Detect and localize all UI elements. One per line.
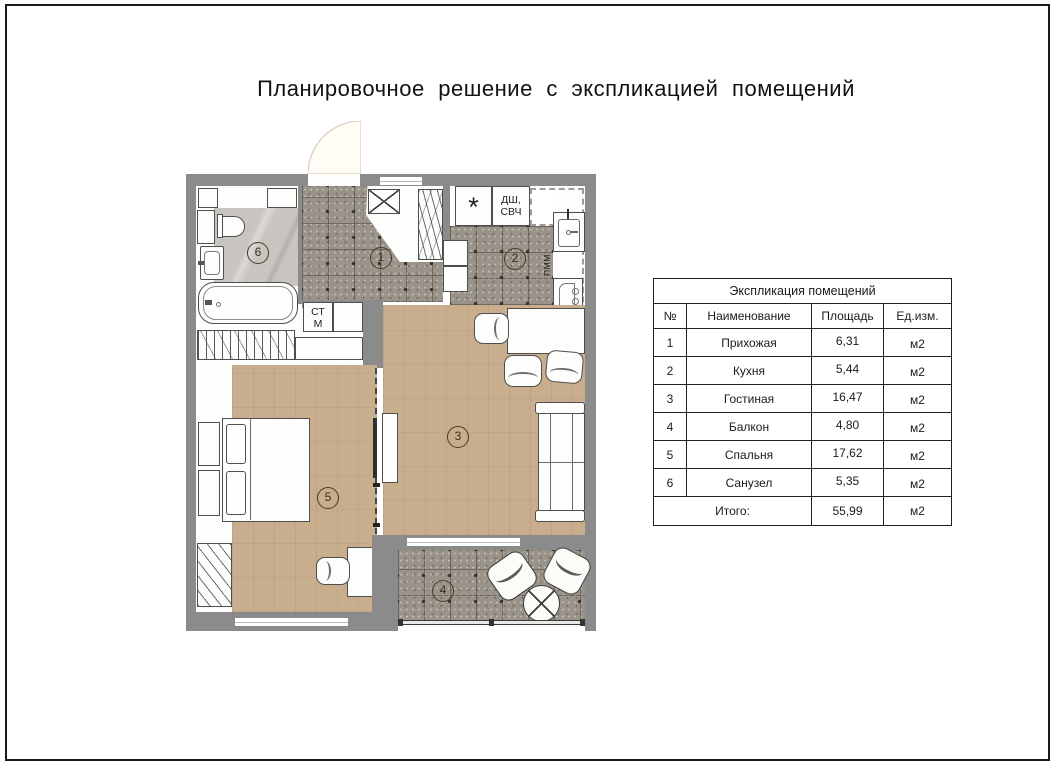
cell-num: 6 [654,469,686,496]
wardrobe-rail-icon [197,330,295,360]
room-number-badge: 1 [370,247,392,269]
dining-table-icon [507,308,585,354]
explication-table: Экспликация помещений № Наименование Пло… [653,278,952,526]
cell-unit: м2 [883,385,951,412]
table-row: 6 Санузел 5,35 м2 [654,468,951,496]
tv-icon [373,418,377,478]
washing-machine-icon: СТ М [303,302,333,332]
cell-num: 5 [654,441,686,468]
mirror-cabinet-icon [368,189,400,214]
room-number-badge: 4 [432,580,454,602]
cell-area: 4,80 [811,413,883,440]
cell-area: 6,31 [811,329,883,356]
washbasin-icon [200,246,224,280]
cell-area: 16,47 [811,385,883,412]
cell-name: Прихожая [686,329,811,356]
cell-unit: м2 [883,329,951,356]
table-row: 1 Прихожая 6,31 м2 [654,328,951,356]
dishwasher-label: ПММ [543,252,555,278]
table-row: 2 Кухня 5,44 м2 [654,356,951,384]
oven-microwave-icon: ДШ, СВЧ [492,186,530,226]
dining-chair-icon [504,355,542,387]
total-area: 55,99 [811,497,883,525]
wall-hall-kitchen [443,186,450,240]
cell-name: Кухня [686,357,811,384]
wall-left [186,174,196,631]
stove-icon: * [455,186,492,226]
svch-label: СВЧ [493,206,529,218]
dining-chair-icon [474,313,509,344]
table-title: Экспликация помещений [654,279,951,303]
door-handle-icon [373,523,380,527]
entrance-door-icon [308,121,361,174]
coat-rack-icon [418,189,443,260]
room-number-badge: 2 [504,248,526,270]
cell-name: Санузел [686,469,811,496]
total-unit: м2 [883,497,951,525]
cell-num: 4 [654,413,686,440]
balcony-door-icon [407,537,520,547]
page-title: Планировочное решение с экспликацией пом… [56,76,1056,102]
kitchen-sink-icon [553,212,585,252]
wall-closet-living [363,302,383,368]
bath-cabinet-icon [198,188,218,208]
sofa-armrest-icon [535,510,585,522]
cell-area: 5,44 [811,357,883,384]
tv-console-icon [382,413,398,483]
cell-num: 1 [654,329,686,356]
cell-num: 2 [654,357,686,384]
bedroom-window-icon [235,617,348,627]
desk-chair-icon [316,557,350,585]
room-number-badge: 5 [317,487,339,509]
stove-label: * [456,189,491,225]
col-header-name: Наименование [686,304,811,328]
table-row: 4 Балкон 4,80 м2 [654,412,951,440]
dining-chair-icon [545,349,585,384]
toilet-icon [222,216,245,237]
cell-num: 3 [654,385,686,412]
room-number-badge: 6 [247,242,269,264]
cell-unit: м2 [883,413,951,440]
bed-icon [222,418,310,522]
pillow-icon [226,424,246,464]
cell-unit: м2 [883,357,951,384]
cell-name: Балкон [686,413,811,440]
closet-shelf-icon [295,337,363,360]
total-label: Итого: [654,497,811,525]
col-header-area: Площадь [811,304,883,328]
closet-box-icon [333,302,363,332]
bathtub-icon [198,282,298,324]
col-header-num: № [654,304,686,328]
floor-plan: * ДШ, СВЧ ПММ [186,174,596,631]
sofa-icon [538,413,585,511]
washer-label-st: СТ [304,306,332,318]
table-total-row: Итого: 55,99 м2 [654,496,951,525]
balcony-table-icon [523,585,560,622]
table-row: 3 Гостиная 16,47 м2 [654,384,951,412]
pillow-icon [226,471,246,515]
wardrobe-icon [197,543,232,607]
cell-area: 5,35 [811,469,883,496]
kitchen-cabinet-icon [443,266,468,292]
nightstand-icon [198,422,220,466]
table-row: 5 Спальня 17,62 м2 [654,440,951,468]
cell-name: Гостиная [686,385,811,412]
drawing-sheet: Планировочное решение с экспликацией пом… [0,0,1057,768]
door-handle-icon [373,483,380,487]
kitchen-cabinet-icon [443,240,468,266]
cell-area: 17,62 [811,441,883,468]
dsh-label: ДШ, [493,194,529,206]
balcony-glazing-icon [398,620,585,625]
nightstand-icon [198,470,220,516]
bath-shelf-icon [267,188,297,208]
cell-name: Спальня [686,441,811,468]
washer-label-m: М [304,318,332,330]
hall-window-icon [380,176,422,186]
cell-unit: м2 [883,469,951,496]
room-number-badge: 3 [447,426,469,448]
bath-counter-icon [197,210,215,244]
entrance-opening [308,174,360,186]
cell-unit: м2 [883,441,951,468]
col-header-unit: Ед.изм. [883,304,951,328]
